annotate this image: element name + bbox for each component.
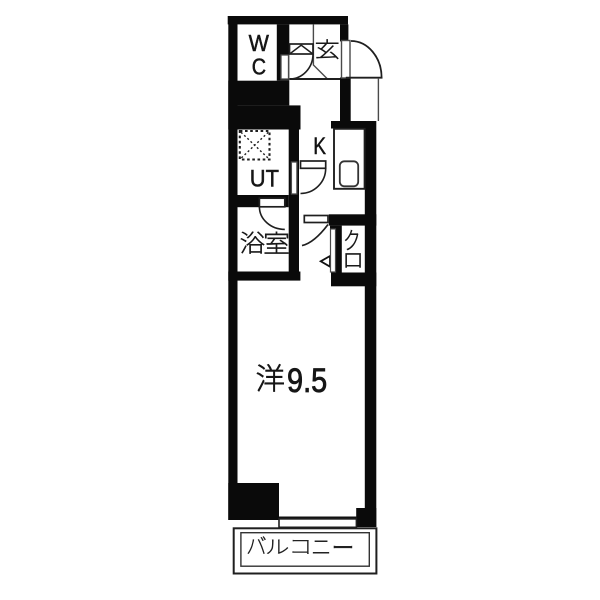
svg-text:K: K <box>313 133 326 160</box>
svg-text:UT: UT <box>250 165 280 192</box>
svg-text:C: C <box>252 54 266 80</box>
svg-text:9.5: 9.5 <box>287 362 327 400</box>
svg-text:W: W <box>249 30 270 56</box>
